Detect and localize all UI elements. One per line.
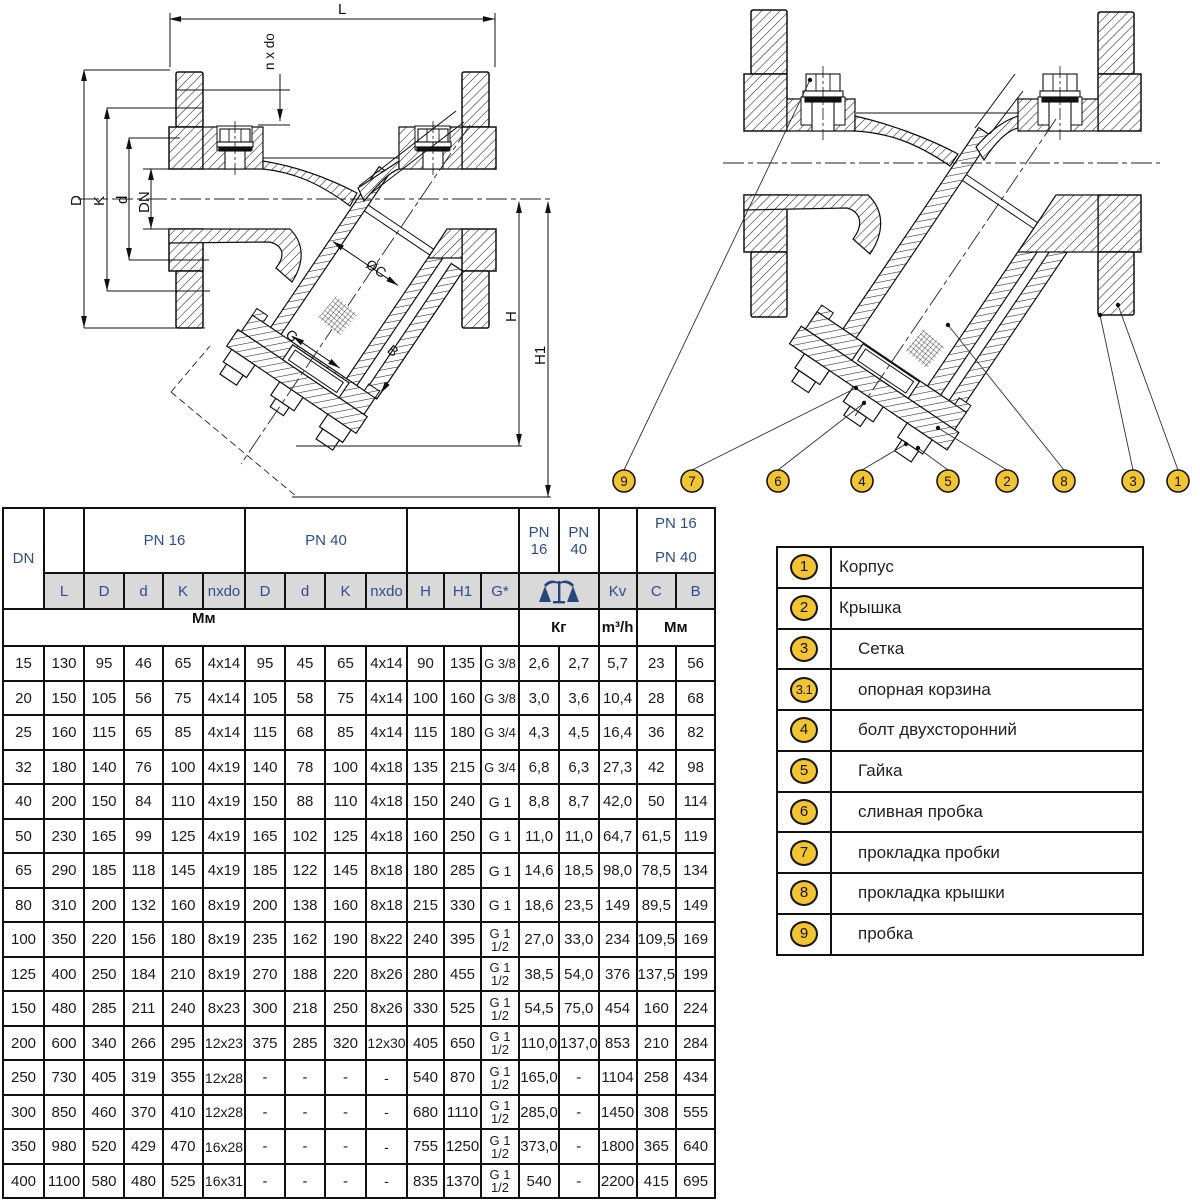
svg-text:K: K	[91, 196, 108, 206]
svg-text:d: d	[114, 196, 131, 204]
svg-text:7: 7	[688, 474, 696, 489]
svg-text:5: 5	[944, 474, 952, 489]
svg-text:4: 4	[858, 474, 866, 489]
svg-text:9: 9	[620, 474, 628, 489]
svg-text:1: 1	[1174, 474, 1182, 489]
svg-text:D: D	[68, 195, 85, 206]
svg-text:L: L	[338, 1, 346, 18]
svg-text:3: 3	[1129, 474, 1137, 489]
svg-text:H: H	[503, 311, 520, 322]
svg-text:2: 2	[1003, 474, 1011, 489]
svg-text:6: 6	[774, 474, 782, 489]
svg-text:H1: H1	[532, 346, 549, 365]
svg-text:DN: DN	[136, 191, 153, 213]
svg-text:n x do: n x do	[262, 33, 277, 70]
svg-text:8: 8	[1060, 474, 1068, 489]
